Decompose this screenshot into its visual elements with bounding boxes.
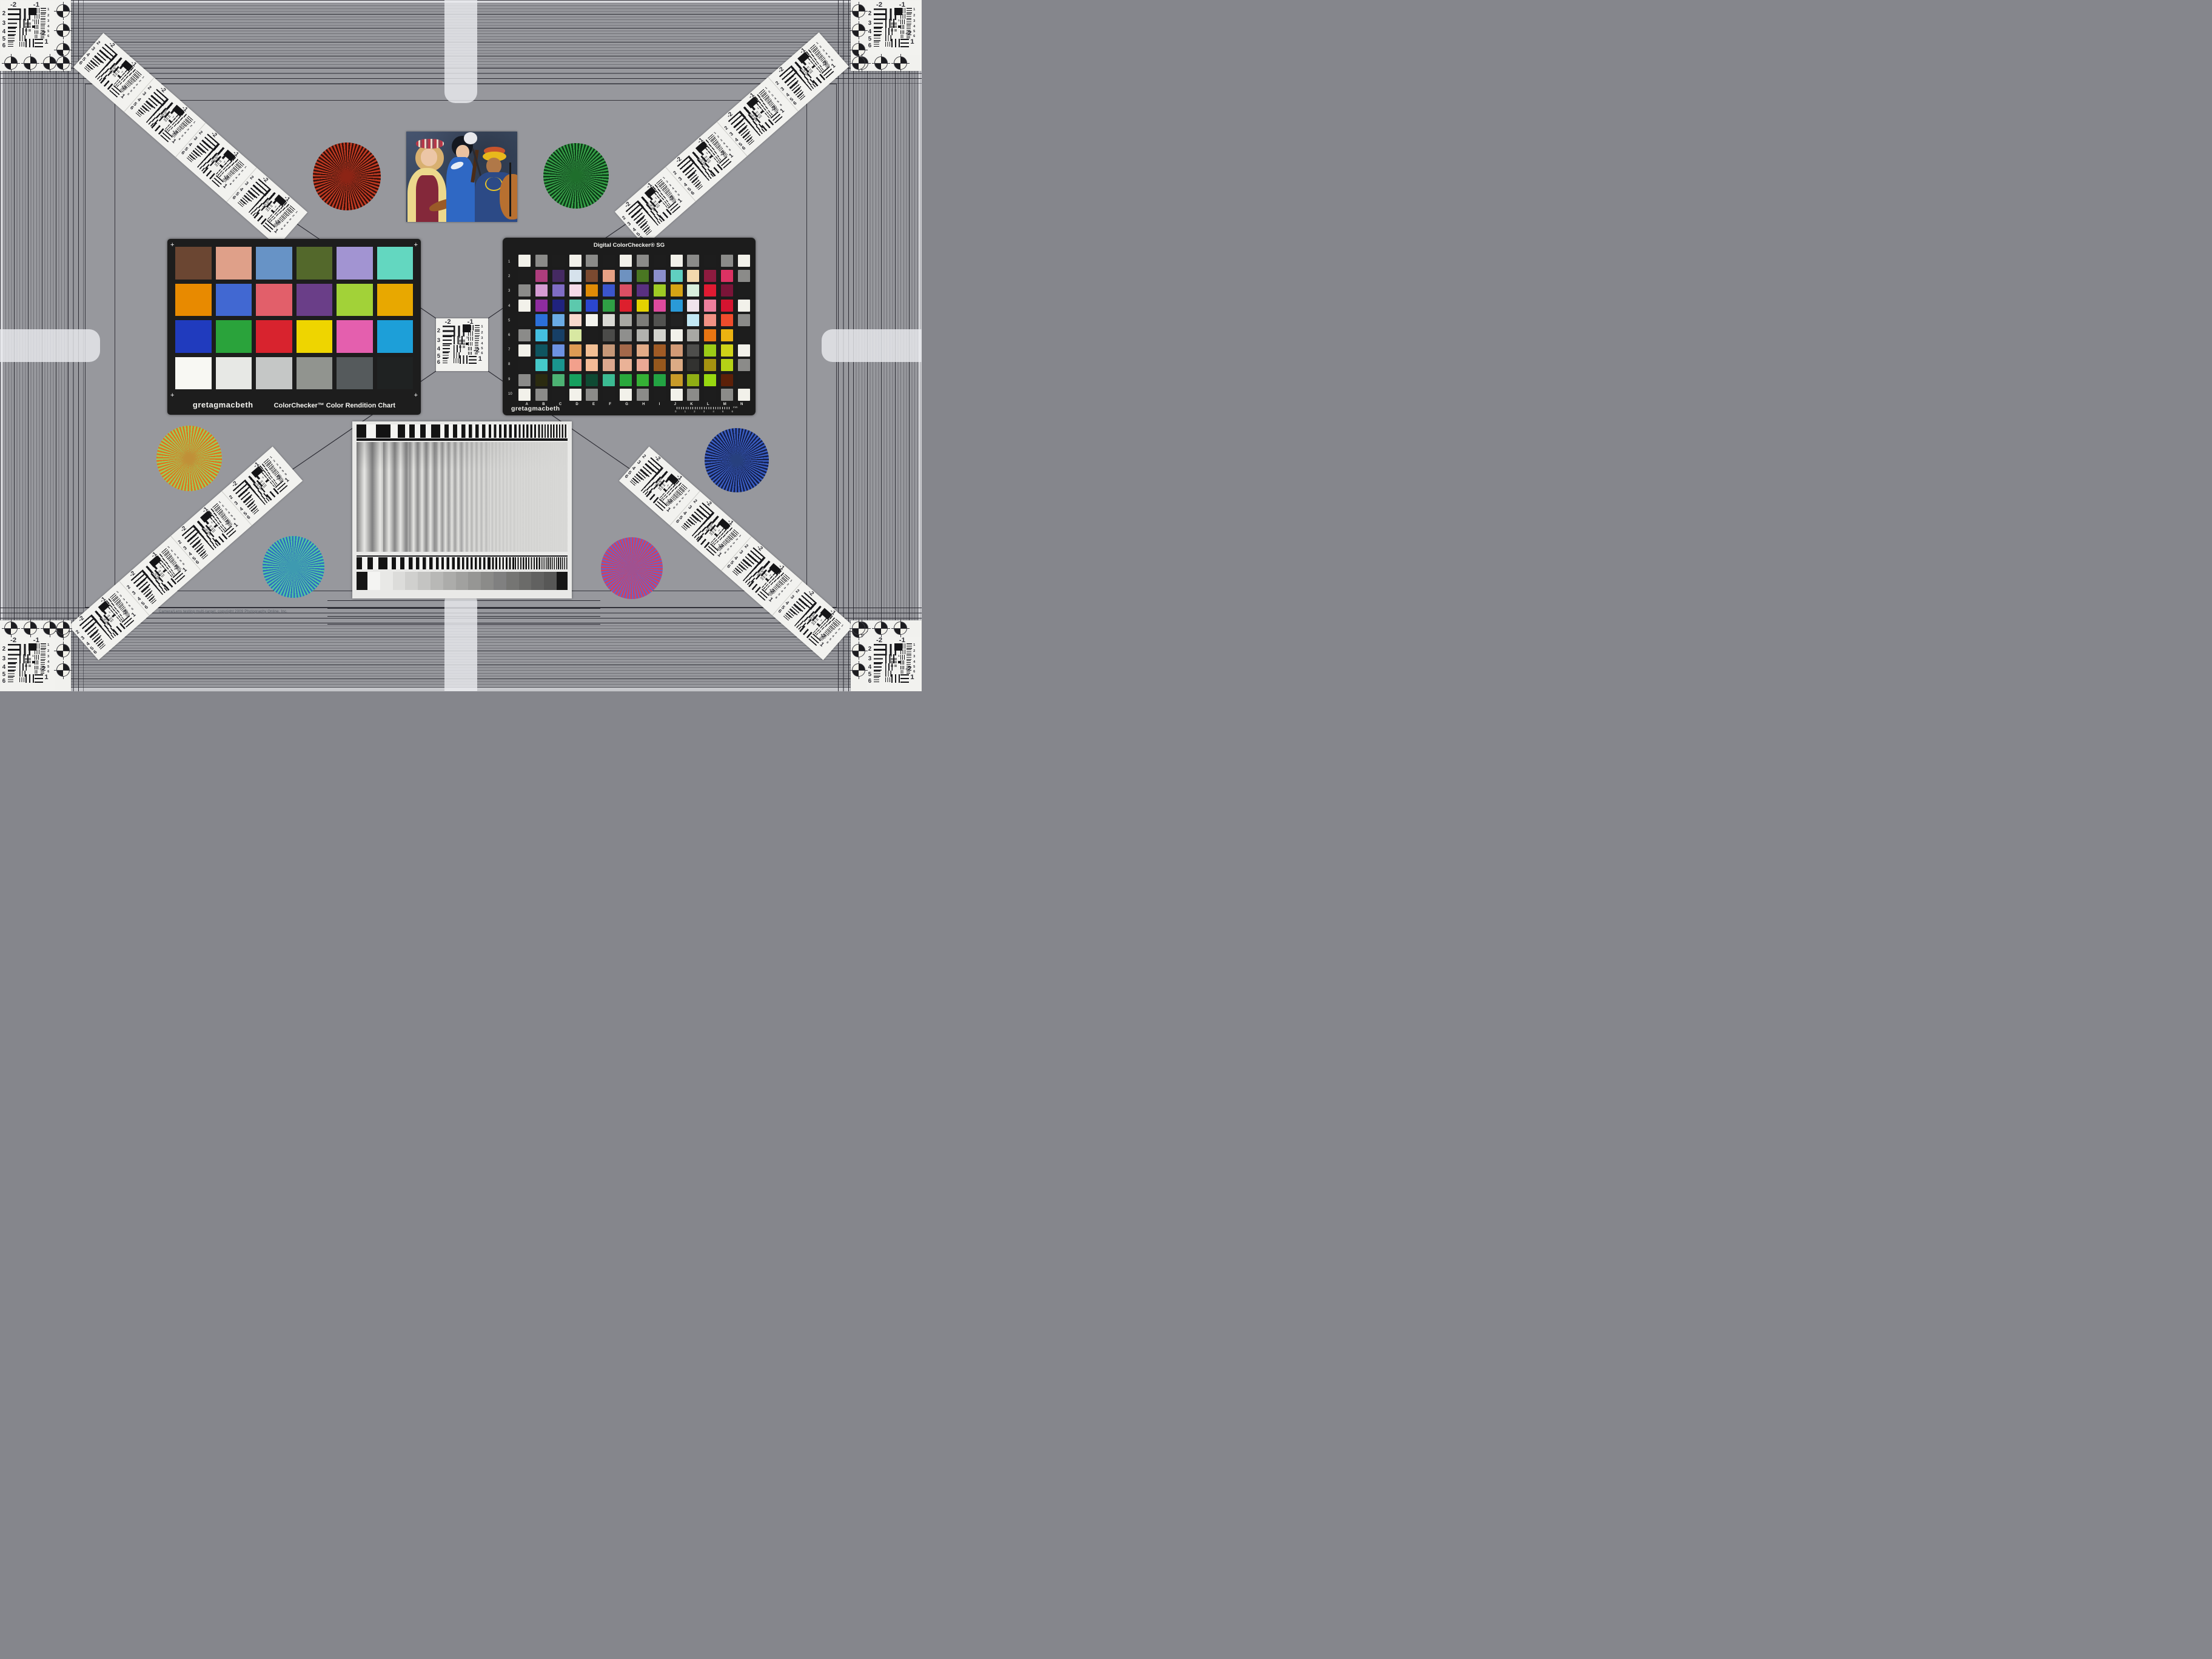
usaf-bars [874, 35, 880, 41]
usaf-number: 1 [168, 546, 171, 549]
usaf-number: 2 [775, 81, 780, 86]
usaf-number: 1 [481, 326, 483, 329]
usaf-bars [25, 39, 34, 47]
usaf-bars [35, 655, 39, 659]
usaf-number: 6 [672, 507, 675, 510]
usaf-number: 3 [288, 218, 291, 221]
usaf-number: 1 [808, 62, 811, 65]
sg-patch [687, 344, 699, 357]
usaf-number: 3 [47, 655, 49, 659]
usaf-number: -2 [876, 637, 882, 644]
sg-row-label: 2 [508, 275, 512, 278]
sg-patch [671, 344, 683, 357]
resolution-target: -2-12345612345601-21 [867, 637, 920, 690]
sg-patch [687, 300, 699, 312]
wedge-step [405, 572, 418, 590]
wedge-end-block [557, 572, 568, 590]
sg-patch [738, 359, 750, 371]
sg-row-label: 7 [508, 348, 512, 352]
usaf-bars [907, 8, 912, 13]
usaf-bars [8, 671, 14, 677]
sg-patch [535, 389, 548, 401]
registration-circle-face [24, 622, 37, 635]
usaf-bars [874, 671, 880, 677]
sg-patch [704, 314, 716, 326]
usaf-number: 2 [75, 629, 81, 635]
usaf-number: 2 [249, 175, 255, 180]
usaf-number: 5 [481, 347, 483, 351]
usaf-bars [41, 14, 45, 19]
usaf-number: 6 [691, 190, 696, 196]
sg-patch [569, 389, 581, 401]
sg-row-labels: 12345678910 [508, 255, 512, 401]
color-patch [337, 284, 373, 317]
sg-patch [721, 359, 733, 371]
usaf-center-dot [163, 569, 166, 572]
usaf-number: 3 [481, 337, 483, 341]
sg-patch [738, 314, 750, 326]
usaf-number: 4 [831, 635, 834, 638]
sg-patch [671, 284, 683, 297]
usaf-bars [822, 67, 834, 78]
usaf-bars [900, 19, 905, 24]
usaf-number: 6 [437, 360, 440, 366]
sg-patch [603, 314, 615, 326]
usaf-bars [25, 658, 27, 660]
usaf-number: 6 [623, 474, 629, 480]
sg-patch [586, 344, 598, 357]
sg-patch [721, 314, 733, 326]
sg-patch [620, 374, 632, 386]
checker-sweep-bottom [357, 557, 568, 569]
wedge-step [456, 572, 469, 590]
sg-patch [738, 284, 750, 297]
checker-segment [409, 557, 436, 569]
frequency-sweep-card [352, 421, 572, 598]
usaf-bars [25, 29, 27, 32]
usaf-number: 2 [795, 588, 800, 594]
sg-patch [671, 300, 683, 312]
sg-patch [721, 329, 733, 341]
sg-patch [552, 314, 565, 326]
registration-circle [850, 661, 868, 679]
sg-patch [535, 329, 548, 341]
usaf-center-dot [265, 479, 269, 483]
colorchecker-grid [175, 247, 413, 389]
usaf-number: -2 [905, 30, 911, 37]
usaf-bars [469, 356, 477, 364]
usaf-bars [874, 663, 881, 671]
sg-patch [687, 284, 699, 297]
registration-circle [891, 54, 910, 72]
usaf-bars [885, 677, 890, 682]
usaf-number: 6 [777, 609, 782, 614]
sg-patch [586, 374, 598, 386]
sg-brand: gretagmacbeth [511, 405, 560, 412]
sg-patch [518, 270, 531, 282]
usaf-number: 3 [234, 501, 240, 506]
usaf-number: 3 [2, 21, 5, 27]
sg-patch [620, 344, 632, 357]
sg-patch [535, 374, 548, 386]
copyright-text: Camera/Lens testing multi-target, copyri… [159, 610, 287, 614]
sg-ruler-number: 4 [712, 410, 714, 413]
usaf-number: 1 [210, 521, 213, 525]
usaf-number: -2 [474, 347, 480, 354]
sg-col-label: L [707, 403, 709, 406]
checker-sweep-top [357, 424, 568, 438]
registration-circle-face [852, 24, 865, 37]
sg-patch [738, 270, 750, 282]
usaf-bars [35, 660, 39, 665]
wedge-step [531, 572, 544, 590]
usaf-number: 4 [913, 25, 915, 29]
sg-patch [620, 255, 632, 267]
usaf-number: 1 [716, 552, 723, 558]
usaf-number: 1 [32, 655, 34, 659]
usaf-number: 4 [868, 29, 871, 35]
usaf-number: 4 [239, 187, 244, 192]
registration-circle [891, 619, 910, 637]
sg-patch [569, 374, 581, 386]
usaf-bars [28, 29, 31, 32]
usaf-number: 1 [131, 612, 138, 618]
colorchecker-brand: gretagmacbeth [193, 400, 253, 409]
usaf-number: 2 [683, 494, 686, 497]
figure-left-face [421, 149, 437, 166]
usaf-number: 3 [132, 591, 137, 596]
usaf-number: -2 [39, 666, 45, 672]
usaf-number: 1 [898, 655, 900, 659]
usaf-bars [25, 25, 27, 28]
sg-ruler-number: 1 [685, 410, 686, 413]
sg-col-label: J [674, 403, 676, 406]
usaf-bars [900, 666, 904, 669]
usaf-number: 3 [834, 632, 837, 635]
registration-circle [872, 54, 890, 72]
usaf-number: 2 [96, 40, 101, 45]
usaf-bars [19, 671, 25, 677]
center-resolution-target: -2-12345612345601-21 [436, 318, 488, 371]
usaf-number: 4 [780, 591, 783, 594]
usaf-number: 1 [47, 8, 49, 12]
usaf-number: -2 [445, 319, 451, 326]
usaf-bars [8, 663, 15, 671]
usaf-bars [459, 340, 461, 342]
sg-patch [654, 344, 666, 357]
sg-patch [671, 359, 683, 371]
usaf-number: -2 [10, 2, 16, 8]
sg-col-label: M [723, 403, 726, 406]
usaf-bars [19, 677, 24, 682]
sg-col-label: H [642, 403, 645, 406]
corner-mark: + [414, 242, 418, 249]
sg-patch [738, 344, 750, 357]
usaf-number: 2 [138, 80, 141, 83]
sg-patch [654, 284, 666, 297]
usaf-number: 2 [189, 125, 192, 128]
registration-circle-face [4, 56, 18, 70]
usaf-number: 1 [910, 674, 914, 681]
sg-patch [603, 284, 615, 297]
registration-circle [850, 2, 868, 20]
registration-circle [21, 54, 39, 72]
usaf-bars [41, 660, 45, 665]
corner-mark: + [170, 242, 174, 249]
sg-patch [671, 270, 683, 282]
usaf-number: 1 [219, 501, 222, 504]
registration-circle-face [852, 644, 865, 657]
sg-ruler-number: 2 [694, 410, 695, 413]
sg-patch [569, 255, 581, 267]
wedge-step [494, 572, 506, 590]
color-patch [256, 284, 292, 317]
sine-sweep-field [357, 442, 568, 552]
sg-ruler-number: 6 [731, 410, 733, 413]
usaf-number: 4 [187, 142, 193, 147]
wedge-step [380, 572, 393, 590]
usaf-number: 1 [687, 490, 690, 493]
registration-circle-face [852, 4, 865, 18]
usaf-number: 1 [738, 535, 741, 538]
colorchecker-sg-chart: Digital ColorChecker® SG 12345678910 ABC… [503, 238, 756, 415]
usaf-bars [28, 665, 31, 667]
usaf-number: 2 [229, 495, 234, 500]
checker-segment [541, 557, 568, 569]
sg-patch [518, 329, 531, 341]
usaf-number: 6 [868, 43, 871, 49]
usaf-bars [35, 14, 39, 19]
usaf-bars [475, 342, 479, 346]
usaf-bars [35, 649, 39, 654]
usaf-number: 1 [109, 611, 111, 614]
usaf-bars [35, 8, 40, 13]
usaf-bars [8, 28, 15, 35]
usaf-bars [900, 8, 906, 13]
corner-target-top-left: -2-12345612345601-21 [0, 0, 71, 71]
usaf-number: 1 [789, 580, 792, 583]
sg-patch [552, 255, 565, 267]
usaf-number: 2 [147, 85, 152, 90]
color-patch [337, 247, 373, 280]
registration-circle-face [56, 4, 70, 18]
usaf-center-dot [898, 25, 900, 28]
usaf-number: 1 [655, 197, 657, 200]
usaf-bars [874, 28, 881, 35]
usaf-number: 1 [47, 644, 49, 648]
usaf-bars [8, 42, 13, 47]
usaf-number: 2 [273, 460, 276, 463]
resolution-target: -2-12345612345601-21 [1, 637, 55, 690]
usaf-bars [8, 35, 14, 41]
usaf-number: 2 [734, 538, 737, 541]
usaf-number: 6 [126, 93, 129, 96]
usaf-center-dot [811, 65, 815, 69]
colorchecker-title: ColorChecker™ Color Rendition Chart [274, 402, 395, 409]
usaf-bars [454, 358, 458, 363]
sg-patch [738, 255, 750, 267]
usaf-number: 1 [816, 42, 819, 45]
usaf-number: 1 [779, 108, 786, 115]
usaf-bars [719, 156, 731, 168]
usaf-number: 1 [765, 87, 768, 90]
usaf-number: 6 [793, 101, 798, 106]
sg-patch [535, 314, 548, 326]
usaf-center-dot [32, 25, 35, 28]
usaf-number: 1 [170, 138, 177, 145]
usaf-bars [770, 112, 782, 123]
usaf-number: 2 [291, 215, 294, 218]
usaf-number: 3 [680, 497, 683, 500]
sg-patch [671, 314, 683, 326]
usaf-number: 6 [229, 183, 232, 186]
usaf-bars [885, 671, 891, 677]
usaf-bars [874, 644, 885, 655]
sg-patch [738, 389, 750, 401]
sg-patch [569, 284, 581, 297]
usaf-number: 2 [642, 454, 647, 459]
usaf-number: 3 [135, 84, 138, 87]
sg-patch [671, 329, 683, 341]
usaf-bars [894, 22, 897, 25]
usaf-bars [8, 19, 17, 28]
sg-patch [603, 255, 615, 267]
registration-circle-face [4, 622, 18, 635]
color-patch [297, 320, 333, 353]
usaf-bars [28, 25, 31, 28]
sg-patch [518, 374, 531, 386]
checker-segment [515, 557, 541, 569]
usaf-number: 4 [136, 97, 142, 102]
usaf-bars [35, 25, 39, 29]
usaf-center-dot [213, 524, 217, 528]
usaf-number: 4 [733, 555, 739, 561]
usaf-bars [907, 655, 911, 659]
usaf-number: 3 [780, 87, 786, 92]
usaf-number: 4 [2, 665, 5, 671]
sg-patch [620, 359, 632, 371]
usaf-bars [475, 337, 479, 341]
usaf-bars [8, 8, 19, 19]
usaf-bars [708, 160, 711, 164]
usaf-bars [894, 665, 897, 667]
usaf-number: 6 [723, 552, 726, 555]
sg-row-label: 10 [508, 392, 512, 396]
usaf-bars [891, 665, 893, 667]
usaf-bars [443, 345, 450, 352]
sg-title: Digital ColorChecker® SG [503, 242, 756, 249]
usaf-number: 1 [141, 76, 144, 79]
usaf-bars [907, 660, 911, 665]
usaf-number: 5 [913, 30, 915, 34]
sg-col-label: F [609, 403, 611, 406]
usaf-number: -2 [10, 637, 16, 644]
sg-ruler-number: 0 [675, 410, 677, 413]
sg-patch [671, 374, 683, 386]
sg-patch [704, 374, 716, 386]
usaf-bars [463, 346, 465, 348]
usaf-bars [900, 14, 905, 19]
figure-right-cello-strings [509, 163, 511, 216]
wedge-step [468, 572, 481, 590]
color-patch [175, 247, 212, 280]
sg-patch [671, 389, 683, 401]
sg-patch [586, 284, 598, 297]
sweep-black-bar [357, 438, 568, 441]
usaf-number: 2 [868, 11, 871, 17]
corner-target-bottom-right: -2-12345612345601-21 [851, 620, 922, 691]
usaf-number: 4 [132, 87, 135, 90]
checker-segment [436, 424, 463, 438]
usaf-number: 4 [481, 343, 483, 346]
sg-patch [654, 314, 666, 326]
green-star [543, 143, 609, 209]
sg-patch [654, 270, 666, 282]
usaf-bars [41, 8, 46, 13]
usaf-number: 2 [913, 650, 915, 654]
color-patch [175, 357, 212, 390]
usaf-bars [25, 22, 27, 25]
registration-circle [54, 54, 72, 72]
usaf-bars [41, 649, 45, 654]
sg-patch [535, 255, 548, 267]
sg-patch [637, 359, 649, 371]
sg-patch [738, 374, 750, 386]
sg-patch [637, 329, 649, 341]
registration-circle-face [24, 56, 37, 70]
usaf-number: 3 [90, 46, 96, 52]
colorchecker-caption: gretagmacbeth ColorChecker™ Color Rendit… [167, 400, 421, 409]
sg-patch [535, 284, 548, 297]
usaf-bars [894, 658, 897, 660]
wedge-step [506, 572, 519, 590]
usaf-number: 3 [47, 20, 49, 24]
usaf-number: 4 [728, 546, 731, 549]
sg-row-label: 4 [508, 304, 512, 308]
sg-patch [620, 284, 632, 297]
registration-circle-face [852, 56, 865, 70]
sg-patch [552, 270, 565, 282]
usaf-bars [900, 670, 904, 674]
usaf-bars [35, 39, 42, 47]
registration-circle-face [56, 24, 70, 37]
usaf-bars [28, 661, 31, 663]
sg-patch [569, 270, 581, 282]
usaf-bars [668, 201, 680, 213]
checker-segment [541, 424, 568, 438]
usaf-bars [475, 331, 480, 336]
usaf-number: 2 [622, 215, 627, 221]
usaf-bars [900, 39, 908, 47]
usaf-bars [468, 325, 474, 330]
wedge-step [393, 572, 406, 590]
wedge-step [443, 572, 456, 590]
usaf-bars [28, 22, 31, 25]
usaf-number: 2 [837, 628, 840, 631]
usaf-bars [900, 660, 905, 665]
usaf-number: 6 [195, 560, 201, 565]
sg-patch [569, 344, 581, 357]
usaf-number: 2 [47, 650, 49, 654]
sg-row-label: 5 [508, 319, 512, 323]
usaf-number: 1 [677, 198, 684, 204]
color-patch [216, 284, 252, 317]
usaf-bars [275, 481, 287, 492]
registration-circle [54, 21, 72, 39]
sg-patch [518, 300, 531, 312]
sg-ruler-number: 3 [703, 410, 705, 413]
corner-target-bottom-left: -2-12345612345601-21 [0, 620, 71, 691]
